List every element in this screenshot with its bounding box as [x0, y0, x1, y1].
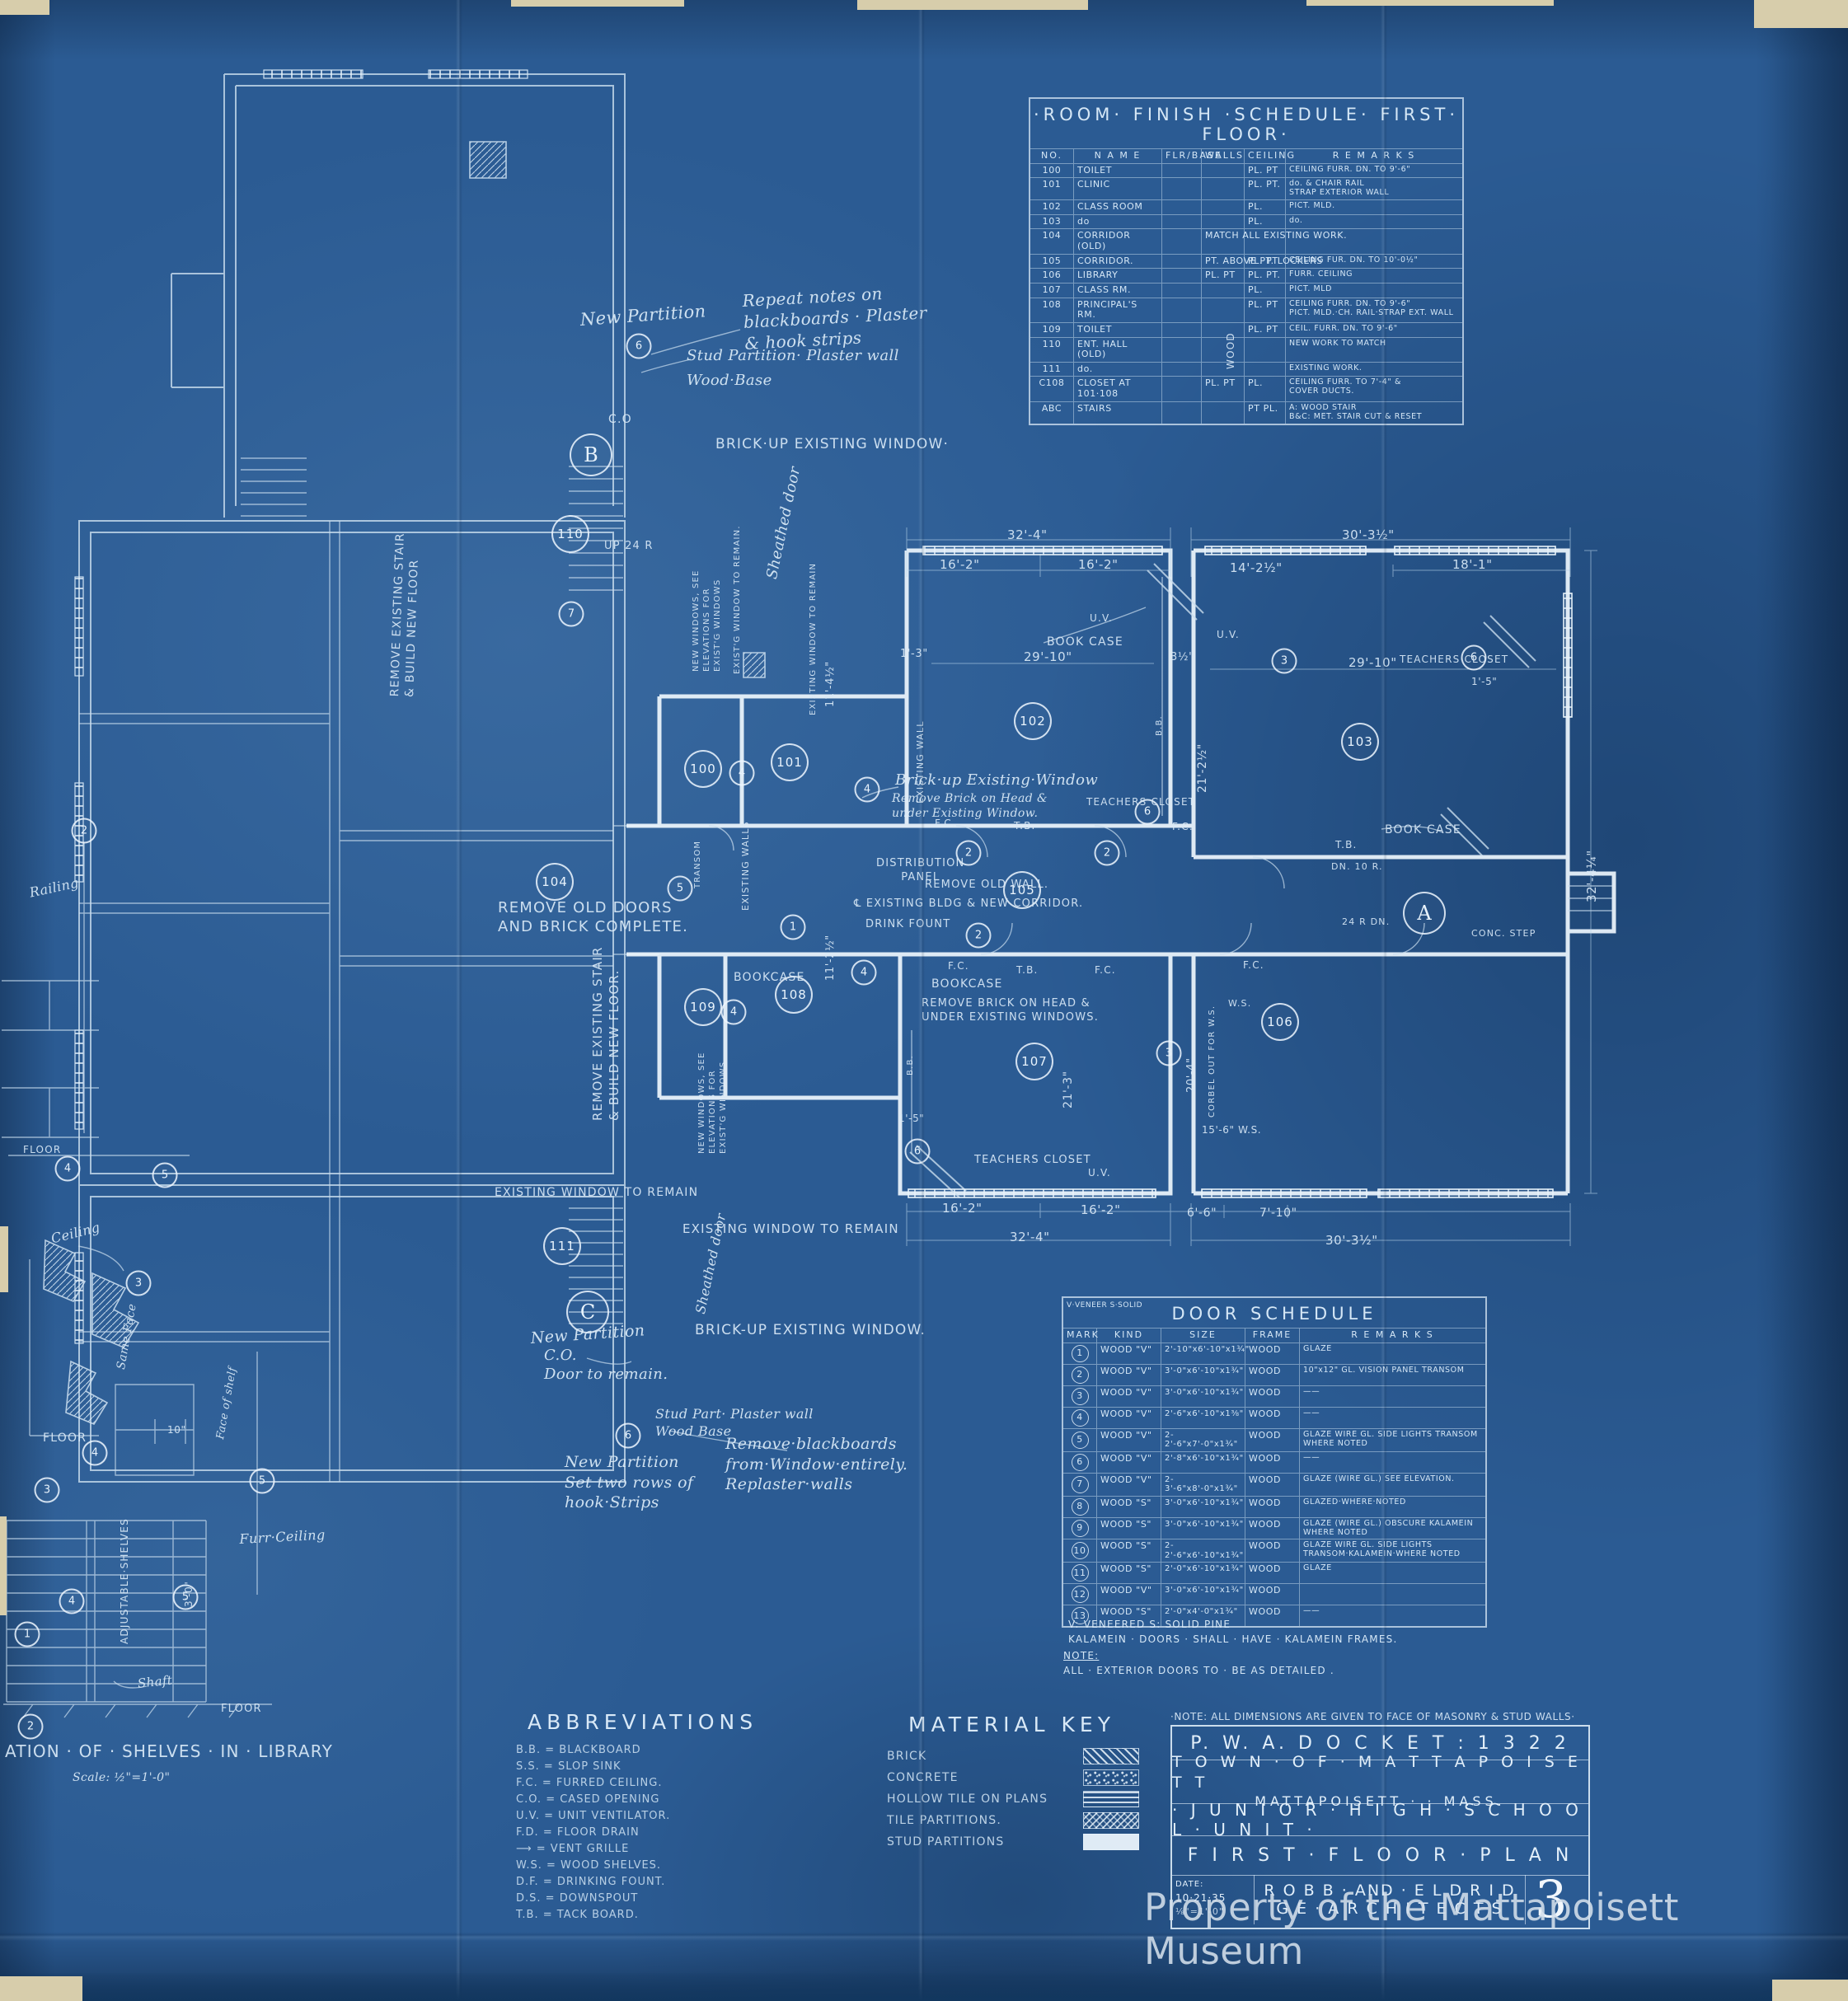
- cell-ceiling: PL.: [1244, 200, 1285, 214]
- material-key-title: MATERIAL KEY: [908, 1713, 1115, 1736]
- door-mark-label: 4: [864, 784, 870, 796]
- abbreviation-item: C.O. = CASED OPENING: [516, 1792, 670, 1808]
- paper-edge: [1772, 1980, 1848, 2001]
- stair-letter-label: B: [584, 443, 598, 466]
- door-swings: [709, 826, 1424, 954]
- cell-walls: [1201, 323, 1244, 337]
- paper-edge: [1306, 0, 1554, 6]
- plan-annotation: Stud Partition· Plaster wall: [687, 346, 899, 365]
- material-swatch: [1083, 1748, 1139, 1764]
- paper-edge: [0, 1516, 7, 1615]
- abbreviation-meaning: = DOWNSPOUT: [546, 1892, 639, 1905]
- door-mark: 1: [781, 915, 806, 940]
- door-mark: 4: [55, 1156, 81, 1182]
- door-mark: 7: [559, 602, 584, 627]
- table-row: 1 WOOD "V" 2'-10"x6'-10"x1¾" WOOD GLAZE: [1063, 1343, 1485, 1364]
- bottom-edge-band: [0, 1973, 1848, 2001]
- table-row: 108 PRINCIPAL'S RM. PL. PT CEILING FURR.…: [1030, 298, 1462, 322]
- cell-flr-base: [1161, 323, 1201, 337]
- plan-annotation: T.B.: [1014, 820, 1036, 833]
- abbreviation-meaning: = TACK BOARD.: [543, 1909, 639, 1921]
- cell-kind: WOOD "V": [1096, 1584, 1161, 1605]
- plan-annotation: 16'-2": [940, 557, 980, 574]
- door-mark-number: 9: [1072, 1520, 1089, 1537]
- room-number-label: 109: [690, 1000, 716, 1015]
- cell-flr-base: [1161, 269, 1201, 283]
- cell-name: STAIRS: [1073, 402, 1161, 424]
- museum-watermark: Property of the Mattapoisett Museum: [1144, 1886, 1848, 1973]
- door-mark-number: 7: [1072, 1476, 1089, 1493]
- material-label: HOLLOW TILE ON PLANS: [887, 1793, 1048, 1805]
- abbreviation: D.S.: [516, 1892, 542, 1905]
- cell-walls: [1201, 284, 1244, 298]
- door-mark-label: 4: [68, 1596, 75, 1608]
- cell-name: CLASS ROOM: [1073, 200, 1161, 214]
- room-number-label: 100: [690, 762, 716, 776]
- table-row: 104 CORRIDOR (OLD) MATCH ALL EXISTING WO…: [1030, 228, 1462, 253]
- cell-remarks: ——: [1299, 1605, 1485, 1626]
- door-mark-number: 10: [1072, 1542, 1089, 1559]
- material-key-item: HOLLOW TILE ON PLANS: [887, 1788, 1151, 1810]
- column-header: KIND: [1096, 1329, 1161, 1343]
- table-row: 103 do PL. do.: [1030, 214, 1462, 229]
- material-key-item: BRICK: [887, 1746, 1151, 1767]
- door-mark-label: 1: [790, 921, 796, 934]
- plan-annotation: 1'-5": [898, 1113, 924, 1126]
- column-header: N A M E: [1073, 149, 1161, 163]
- cell-no: 100: [1030, 164, 1073, 178]
- table-row: 7 WOOD "V" 2-3'-6"x8'-0"x1¾" WOOD GLAZE …: [1063, 1473, 1485, 1496]
- cell-walls: [1201, 338, 1244, 362]
- table-row: 101 CLINIC PL. PT. do. & CHAIR RAIL STRA…: [1030, 177, 1462, 199]
- plan-annotation: REMOVE BRICK ON HEAD & UNDER EXISTING WI…: [922, 997, 1099, 1025]
- cell-name: CLASS RM.: [1073, 284, 1161, 298]
- plan-annotation: CORBEL OUT FOR W.S.: [1207, 1005, 1217, 1118]
- paper-edge: [0, 0, 49, 15]
- plan-annotation: FLOOR: [43, 1431, 87, 1446]
- plan-annotation: 16'-2": [1078, 557, 1119, 574]
- plan-annotation: 16'-2": [942, 1201, 983, 1217]
- cell-size: 2'-8"x6'-10"x1¾": [1161, 1452, 1245, 1473]
- cell-ceiling: PL. PT: [1244, 164, 1285, 178]
- door-mark: 1: [15, 1622, 40, 1647]
- room-number: 109: [684, 988, 722, 1026]
- plan-annotation: DN. 10 R.: [1331, 861, 1383, 873]
- plan-annotation: BOOK CASE: [1385, 822, 1461, 837]
- cell-ceiling: PL.: [1244, 215, 1285, 229]
- table-row: 111 do. EXISTING WORK.: [1030, 362, 1462, 377]
- door-mark-label: 4: [861, 967, 867, 979]
- cell-size: 3'-0"x6'-10"x1¾": [1161, 1518, 1245, 1539]
- plan-annotation: F.C.: [1095, 964, 1116, 977]
- plan-annotation: Scale: ½"=1'-0": [73, 1770, 170, 1785]
- door-mark-label: 7: [568, 608, 575, 621]
- cell-walls: PL. PT: [1201, 269, 1244, 283]
- abbreviation-meaning: = DRINKING FOUNT.: [543, 1876, 665, 1888]
- plan-annotation: 21'-2½": [1195, 743, 1210, 793]
- cell-mark: 6: [1063, 1452, 1096, 1473]
- abbreviation-meaning: = WOOD SHELVES.: [546, 1859, 661, 1872]
- plan-annotation: 32'-4": [1010, 1230, 1050, 1246]
- plan-annotation: TEACHERS CLOSET: [1086, 796, 1195, 809]
- door-mark-label: 5: [259, 1475, 265, 1488]
- table-row: 12 WOOD "V" 3'-0"x6'-10"x1¾" WOOD: [1063, 1583, 1485, 1605]
- door-mark-number: 12: [1072, 1586, 1089, 1603]
- cell-ceiling: [1244, 229, 1285, 253]
- paper-edge: [1754, 0, 1848, 28]
- cell-walls: [1201, 363, 1244, 377]
- unit-name: · J U N I O R · H I G H · S C H O O L · …: [1172, 1803, 1588, 1836]
- table-row: 3 WOOD "V" 3'-0"x6'-10"x1¾" WOOD ——: [1063, 1385, 1485, 1407]
- abbreviation: F.D.: [516, 1826, 539, 1839]
- plan-annotation: EXIST'G WINDOW TO REMAIN.: [732, 525, 743, 674]
- cell-ceiling: [1244, 363, 1285, 377]
- cell-no: 109: [1030, 323, 1073, 337]
- material-label: STUD PARTITIONS: [887, 1836, 1005, 1848]
- door-mark-label: 5: [162, 1169, 168, 1182]
- material-swatch: [1083, 1834, 1139, 1850]
- door-mark: 2: [966, 923, 992, 949]
- room-number-label: 101: [776, 755, 803, 770]
- room-number-label: 102: [1020, 714, 1046, 729]
- cell-remarks: GLAZE WIRE GL. SIDE LIGHTS TRANSOM·KALAM…: [1299, 1539, 1485, 1562]
- cell-name: LIBRARY: [1073, 269, 1161, 283]
- cell-frame: WOOD: [1245, 1539, 1299, 1562]
- door-mark: 4: [851, 960, 877, 986]
- cell-flr-base: [1161, 338, 1201, 362]
- plan-annotation: Sheathed door: [762, 465, 805, 581]
- cell-remarks: GLAZE: [1299, 1343, 1485, 1364]
- plan-annotation: Shaft: [137, 1673, 173, 1693]
- table-row: 8 WOOD "S" 3'-0"x6'-10"x1¾" WOOD GLAZED·…: [1063, 1496, 1485, 1517]
- room-finish-schedule-header: NO.N A M EFLR/BASEWALLSCEILINGR E M A R …: [1030, 148, 1462, 163]
- cell-kind: WOOD "V": [1096, 1408, 1161, 1428]
- door-schedule-key-note: V·VENEER S·SOLID: [1067, 1301, 1142, 1311]
- room-finish-schedule: ·ROOM· FINISH ·SCHEDULE· FIRST· FLOOR· N…: [1029, 97, 1464, 425]
- cell-remarks: [1299, 1584, 1485, 1605]
- door-mark-number: 3: [1072, 1388, 1089, 1405]
- cell-remarks: GLAZE WIRE GL. SIDE LIGHTS TRANSOM WHERE…: [1299, 1429, 1485, 1451]
- cell-name: do: [1073, 215, 1161, 229]
- cell-frame: WOOD: [1245, 1605, 1299, 1626]
- plan-annotation: Furr·Ceiling: [239, 1527, 326, 1549]
- cell-size: 2'-10"x6'-10"x1¾": [1161, 1343, 1245, 1364]
- door-mark-label: 3: [1281, 655, 1288, 668]
- plan-annotation: ATION · OF · SHELVES · IN · LIBRARY: [5, 1741, 333, 1762]
- stair-letter-label: A: [1417, 902, 1431, 925]
- plan-annotation: REMOVE OLD WALL.: [925, 879, 1048, 893]
- abbreviation-item: U.V. = UNIT VENTILATOR.: [516, 1808, 670, 1825]
- cell-mark: 3: [1063, 1386, 1096, 1407]
- cell-ceiling: PL. PT.: [1244, 178, 1285, 199]
- cell-no: 103: [1030, 215, 1073, 229]
- room-number-label: 111: [549, 1239, 575, 1254]
- cell-mark: 4: [1063, 1408, 1096, 1428]
- column-header: FLR/BASE: [1161, 149, 1201, 163]
- cell-remarks: GLAZE (WIRE GL.) SEE ELEVATION.: [1299, 1474, 1485, 1496]
- room-number: 106: [1261, 1003, 1299, 1041]
- material-key-item: TILE PARTITIONS.: [887, 1810, 1151, 1831]
- cell-frame: WOOD: [1245, 1429, 1299, 1451]
- plan-annotation: 1'-3": [900, 648, 928, 662]
- room-number-label: 104: [542, 874, 568, 889]
- room-number: 102: [1014, 702, 1052, 740]
- cell-frame: WOOD: [1245, 1497, 1299, 1517]
- material-swatch: [1083, 1812, 1139, 1829]
- plan-annotation: New Partition: [530, 1320, 645, 1348]
- cell-no: C108: [1030, 377, 1073, 401]
- plan-annotation: ADJUSTABLE·SHELVES: [119, 1518, 132, 1644]
- cell-frame: WOOD: [1245, 1563, 1299, 1583]
- cell-size: 2-3'-6"x8'-0"x1¾": [1161, 1474, 1245, 1496]
- room-number-label: 110: [557, 527, 584, 541]
- door-mark-label: 4: [91, 1447, 98, 1460]
- abbreviation-item: D.F. = DRINKING FOUNT.: [516, 1874, 670, 1891]
- cell-flr-base: [1161, 284, 1201, 298]
- plan-annotation: U.V.: [1088, 1167, 1111, 1180]
- abbreviation: W.S.: [516, 1859, 542, 1872]
- plan-annotation: 3½": [1170, 651, 1194, 665]
- door-schedule-header: MARKKINDSIZEFRAMER E M A R K S: [1063, 1328, 1485, 1343]
- cell-no: 111: [1030, 363, 1073, 377]
- material-key-item: CONCRETE: [887, 1767, 1151, 1788]
- cell-remarks: do. & CHAIR RAIL STRAP EXTERIOR WALL: [1285, 178, 1462, 199]
- door-schedule: V·VENEER S·SOLID DOOR SCHEDULE MARKKINDS…: [1062, 1296, 1487, 1628]
- stair-letter: B: [570, 433, 612, 476]
- door-mark-number: 2: [1072, 1366, 1089, 1384]
- plan-annotation: B.B.: [1154, 715, 1165, 736]
- plan-annotation: BRICK·UP EXISTING WINDOW·: [715, 435, 949, 453]
- material-key-item: STUD PARTITIONS: [887, 1831, 1151, 1853]
- plan-annotation: BOOKCASE: [931, 977, 1003, 991]
- plan-annotation: 32'-4¼": [1584, 850, 1601, 902]
- plan-annotation: 21'-3": [1061, 1071, 1076, 1108]
- plan-annotation: 11'-4½": [824, 661, 838, 707]
- room-number: 103: [1341, 723, 1379, 761]
- room-finish-schedule-body: 100 TOILET PL. PT CEILING FURR. DN. TO 9…: [1030, 163, 1462, 424]
- door-mark-label: 4: [739, 767, 745, 780]
- cell-walls: [1201, 402, 1244, 424]
- cell-mark: 12: [1063, 1584, 1096, 1605]
- abbreviation: S.S.: [516, 1760, 540, 1773]
- door-mark: 4: [59, 1589, 85, 1614]
- door-schedule-footnote-1: V: VENEERED S: SOLID PINE: [1068, 1617, 1231, 1633]
- plan-annotation: F.C.: [1243, 959, 1264, 972]
- stair-letter-label: C: [580, 1300, 595, 1324]
- abbreviation-meaning: = FLOOR DRAIN: [543, 1826, 640, 1839]
- abbreviation-meaning: = VENT GRILLE: [537, 1843, 630, 1855]
- plan-annotation: Ceiling: [49, 1219, 102, 1248]
- door-mark: 6: [905, 1139, 931, 1165]
- column-header: FRAME: [1245, 1329, 1299, 1343]
- door-mark: 2: [72, 818, 97, 844]
- table-row: 5 WOOD "V" 2-2'-6"x7'-0"x1¾" WOOD GLAZE …: [1063, 1428, 1485, 1451]
- plan-annotation: 1'-5": [1471, 676, 1497, 689]
- table-row: 107 CLASS RM. PL. PICT. MLD: [1030, 283, 1462, 298]
- cell-frame: WOOD: [1245, 1386, 1299, 1407]
- cell-remarks: [1285, 229, 1462, 253]
- cell-frame: WOOD: [1245, 1408, 1299, 1428]
- door-mark-label: 2: [81, 825, 87, 837]
- cell-ceiling: PL. PT.: [1244, 269, 1285, 283]
- room-number-label: 106: [1267, 1015, 1293, 1029]
- plan-annotation: 30'-3½": [1325, 1233, 1378, 1249]
- cell-frame: WOOD: [1245, 1584, 1299, 1605]
- cell-remarks: do.: [1285, 215, 1462, 229]
- cell-walls: PT. ABOVE PT. LOCKERS: [1201, 255, 1244, 269]
- cell-frame: WOOD: [1245, 1452, 1299, 1473]
- plan-annotation: 7'-10": [1259, 1206, 1297, 1221]
- cell-remarks: A: WOOD STAIR B&C: MET. STAIR CUT & RESE…: [1285, 402, 1462, 424]
- cell-size: 2-2'-6"x6'-10"x1¾": [1161, 1539, 1245, 1562]
- plan-annotation: TEACHERS·CLOSET: [1400, 654, 1508, 667]
- table-row: 10 WOOD "S" 2-2'-6"x6'-10"x1¾" WOOD GLAZ…: [1063, 1539, 1485, 1562]
- abbreviation-item: T.B. = TACK BOARD.: [516, 1907, 670, 1924]
- cell-flr-base: [1161, 229, 1201, 253]
- cell-walls: [1201, 164, 1244, 178]
- material-key-list: BRICK CONCRETE HOLLOW TILE ON PLANS TILE…: [887, 1746, 1151, 1853]
- plan-annotation: EXISTING WALL: [915, 720, 926, 804]
- cell-walls: PL. PT: [1201, 377, 1244, 401]
- plan-annotation: 3'-0": [183, 1582, 196, 1607]
- hatched-details: [44, 142, 765, 1424]
- cell-remarks: PICT. MLD: [1285, 284, 1462, 298]
- cell-ceiling: PL.: [1244, 377, 1285, 401]
- cell-frame: WOOD: [1245, 1343, 1299, 1364]
- door-mark-number: 6: [1072, 1454, 1089, 1471]
- cell-name: TOILET: [1073, 323, 1161, 337]
- material-label: CONCRETE: [887, 1772, 959, 1783]
- abbreviations-list: B.B. = BLACKBOARDS.S. = SLOP SINKF.C. = …: [516, 1742, 670, 1924]
- cell-remarks: GLAZE (WIRE GL.) OBSCURE KALAMEIN WHERE …: [1299, 1518, 1485, 1539]
- door-schedule-title-text: DOOR SCHEDULE: [1171, 1304, 1377, 1324]
- abbreviations-title: ABBREVIATIONS: [528, 1710, 757, 1734]
- door-mark-number: 11: [1072, 1564, 1089, 1582]
- cell-mark: 2: [1063, 1365, 1096, 1385]
- plan-annotation: T.B.: [1335, 839, 1358, 852]
- stair-letter: A: [1403, 892, 1446, 935]
- abbreviation: U.V.: [516, 1810, 540, 1822]
- door-mark: 2: [1095, 841, 1120, 866]
- plan-annotation: C.O: [608, 412, 632, 427]
- cell-size: 3'-0"x6'-10"x1¾": [1161, 1497, 1245, 1517]
- abbreviation-item: F.D. = FLOOR DRAIN: [516, 1825, 670, 1841]
- cell-no: 101: [1030, 178, 1073, 199]
- plan-annotation: TRANSOM: [692, 841, 703, 888]
- cell-mark: 9: [1063, 1518, 1096, 1539]
- paper-edge: [0, 1226, 8, 1292]
- cell-remarks: FURR. CEILING: [1285, 269, 1462, 283]
- cell-kind: WOOD "S": [1096, 1518, 1161, 1539]
- plan-annotation: BOOKCASE: [734, 970, 805, 985]
- door-mark: 6: [616, 1423, 641, 1449]
- cell-no: 102: [1030, 200, 1073, 214]
- table-row: 4 WOOD "V" 2'-6"x6'-10"x1⅜" WOOD ——: [1063, 1407, 1485, 1428]
- table-row: 109 TOILET PL. PT CEIL. FURR. DN. TO 9'-…: [1030, 322, 1462, 337]
- plan-annotation: 10": [167, 1424, 186, 1437]
- cell-name: CORRIDOR (OLD): [1073, 229, 1161, 253]
- abbreviation: D.F.: [516, 1876, 539, 1888]
- cell-mark: 11: [1063, 1563, 1096, 1583]
- plan-annotation: U.V.: [1090, 612, 1113, 626]
- paper-edge: [0, 1976, 82, 2001]
- cell-ceiling: PL.: [1244, 284, 1285, 298]
- table-row: 102 CLASS ROOM PL. PICT. MLD.: [1030, 199, 1462, 214]
- plan-annotation: Remove·blackboards from·Window·entirely.…: [725, 1434, 908, 1495]
- plan-annotation: 20'-4": [1185, 1057, 1199, 1093]
- cell-remarks: 10"x12" GL. VISION PANEL TRANSOM: [1299, 1365, 1485, 1385]
- table-row: C108 CLOSET AT 101·108 PL. PT PL. CEILIN…: [1030, 376, 1462, 401]
- plan-annotation: New Partition Set two rows of hook·Strip…: [565, 1452, 693, 1513]
- cell-name: CORRIDOR.: [1073, 255, 1161, 269]
- door-mark-label: 6: [636, 340, 642, 353]
- plan-annotation: U.V.: [1217, 629, 1240, 642]
- cell-ceiling: PT PL.: [1244, 402, 1285, 424]
- cell-frame: WOOD: [1245, 1365, 1299, 1385]
- blueprint-sheet: 100101102103104105106107108109110111 ABC…: [0, 0, 1848, 2001]
- cell-name: CLOSET AT 101·108: [1073, 377, 1161, 401]
- door-mark-label: 4: [730, 1006, 737, 1019]
- plan-annotation: EXISTING WINDOW TO REMAIN: [495, 1185, 698, 1200]
- column-header: WALLS: [1201, 149, 1244, 163]
- plan-annotation: 29'-10": [1348, 655, 1397, 672]
- abbreviation: C.O.: [516, 1793, 542, 1806]
- cell-remarks: CEIL. FURR. DN. TO 9'-6": [1285, 323, 1462, 337]
- cell-walls: MATCH ALL EXISTING WORK.: [1201, 229, 1244, 253]
- door-mark: 5: [668, 876, 693, 902]
- cell-kind: WOOD "V": [1096, 1474, 1161, 1496]
- cell-frame: WOOD: [1245, 1474, 1299, 1496]
- cell-walls: [1201, 298, 1244, 322]
- cell-remarks: GLAZED·WHERE·NOTED: [1299, 1497, 1485, 1517]
- plan-annotation: Stud Part· Plaster wall Wood Base: [655, 1406, 814, 1441]
- cell-remarks: ——: [1299, 1452, 1485, 1473]
- abbreviation: T.B.: [516, 1909, 539, 1921]
- material-swatch: [1083, 1769, 1139, 1786]
- cell-flr-base: [1161, 200, 1201, 214]
- door-mark: 3: [126, 1271, 152, 1296]
- room-finish-schedule-title: ·ROOM· FINISH ·SCHEDULE· FIRST· FLOOR·: [1030, 99, 1462, 148]
- table-row: 6 WOOD "V" 2'-8"x6'-10"x1¾" WOOD ——: [1063, 1451, 1485, 1473]
- door-mark: 6: [626, 334, 652, 359]
- column-header: NO.: [1030, 149, 1073, 163]
- cell-remarks: ——: [1299, 1386, 1485, 1407]
- door-mark-label: 3: [44, 1484, 50, 1497]
- abbreviation-item: F.C. = FURRED CEILING.: [516, 1775, 670, 1792]
- cell-ceiling: PL. PT: [1244, 255, 1285, 269]
- cell-mark: 1: [1063, 1343, 1096, 1364]
- cell-ceiling: PL. PT: [1244, 323, 1285, 337]
- plan-annotation: UP 24 R: [604, 540, 654, 554]
- cell-mark: 7: [1063, 1474, 1096, 1496]
- plan-annotation: 11'-2½": [824, 935, 838, 981]
- door-mark-number: 1: [1072, 1345, 1089, 1362]
- plan-annotation: ℄ EXISTING BLDG & NEW CORRIDOR.: [854, 897, 1083, 911]
- cell-remarks: EXISTING WORK.: [1285, 363, 1462, 377]
- door-schedule-body: 1 WOOD "V" 2'-10"x6'-10"x1¾" WOOD GLAZE …: [1063, 1343, 1485, 1627]
- cell-remarks: NEW WORK TO MATCH: [1285, 338, 1462, 362]
- plan-annotation: W.S.: [1228, 998, 1251, 1010]
- plan-annotation: 30'-3½": [1342, 527, 1395, 544]
- plan-annotation: 29'-10": [1024, 649, 1072, 666]
- plan-annotation: NEW WINDOWS, SEE ELEVATIONS FOR EXIST'G …: [691, 569, 723, 672]
- cell-name: do.: [1073, 363, 1161, 377]
- cell-mark: 10: [1063, 1539, 1096, 1562]
- plan-annotation: CONC. STEP: [1471, 928, 1536, 940]
- fold-crease: [456, 0, 462, 2001]
- door-mark: 5: [152, 1163, 178, 1188]
- abbreviation: F.C.: [516, 1777, 538, 1789]
